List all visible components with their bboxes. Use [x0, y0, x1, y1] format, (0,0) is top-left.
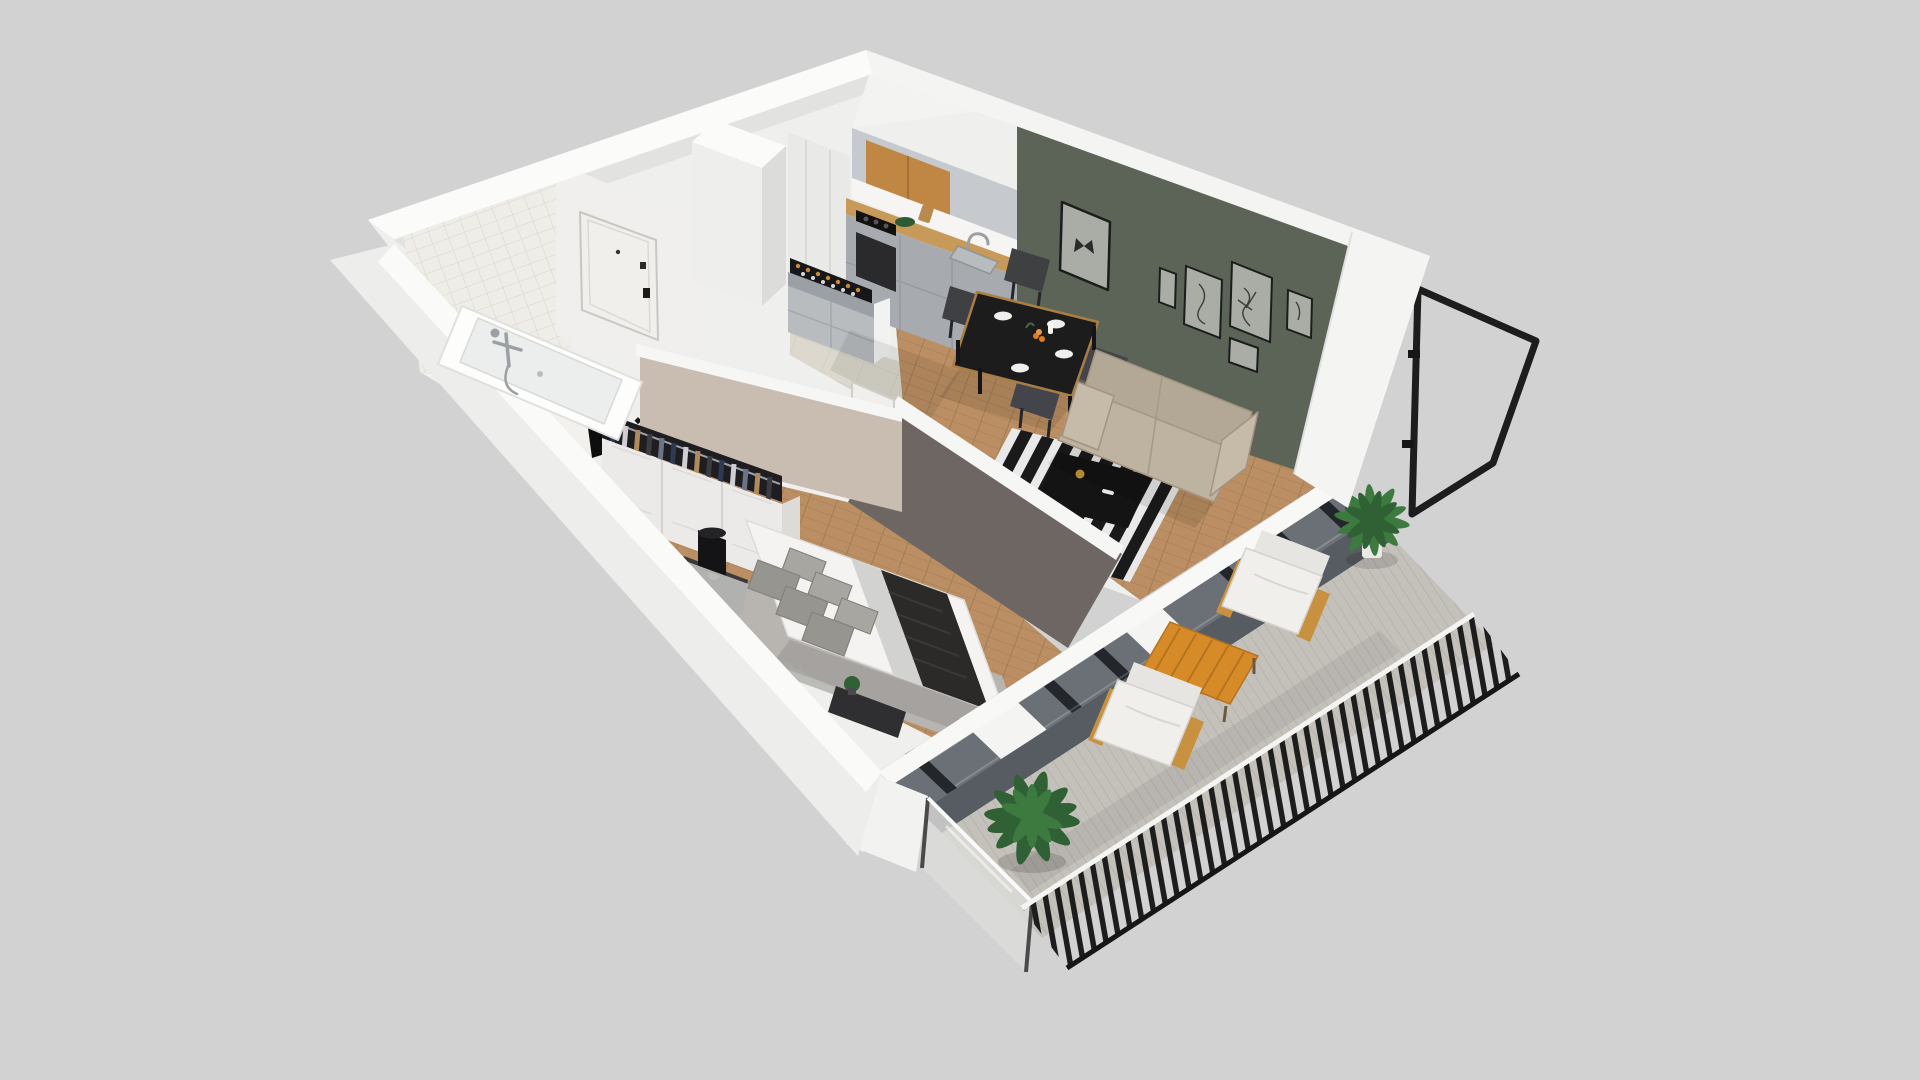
- tub-drain: [537, 371, 543, 377]
- apartment-floorplan-render: [0, 0, 1920, 1080]
- fruit-bowl: [895, 217, 915, 227]
- apartment-render-stage: [0, 0, 1920, 1080]
- ventilation-column: [692, 120, 786, 306]
- gallery-frame-1: [1159, 268, 1176, 308]
- door-peephole: [616, 250, 620, 254]
- door-handle: [643, 288, 650, 298]
